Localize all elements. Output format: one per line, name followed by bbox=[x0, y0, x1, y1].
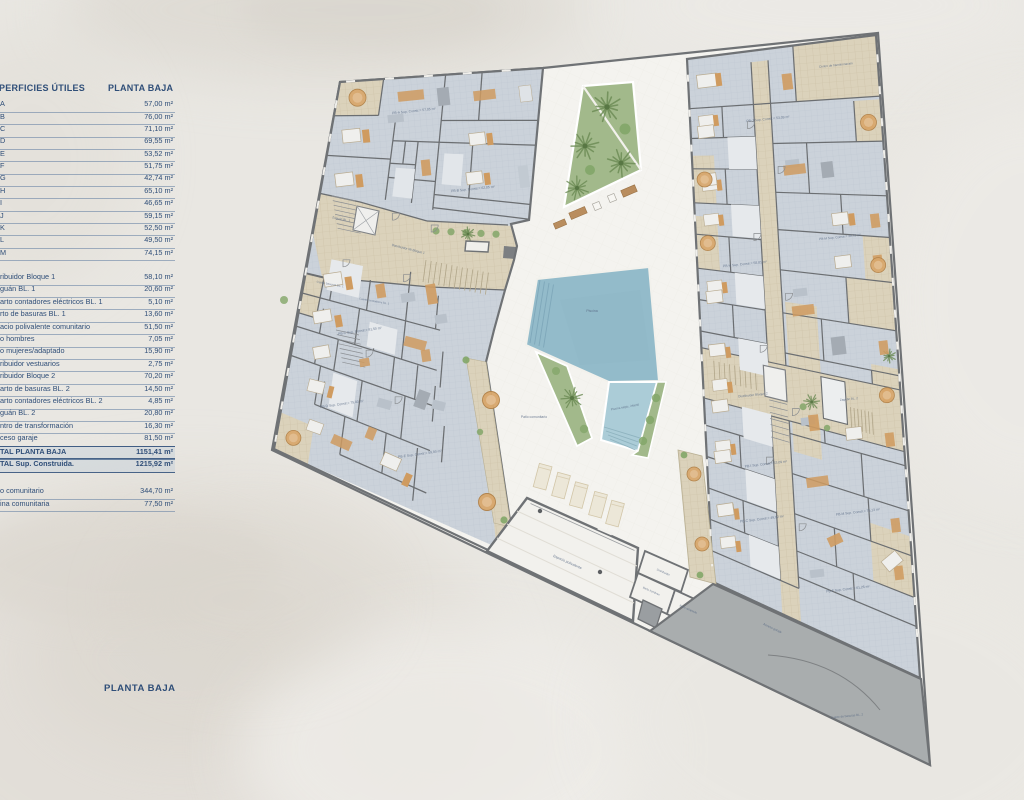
svg-text:Patio comunitario: Patio comunitario bbox=[521, 415, 547, 419]
svg-text:Piscina: Piscina bbox=[586, 309, 598, 313]
